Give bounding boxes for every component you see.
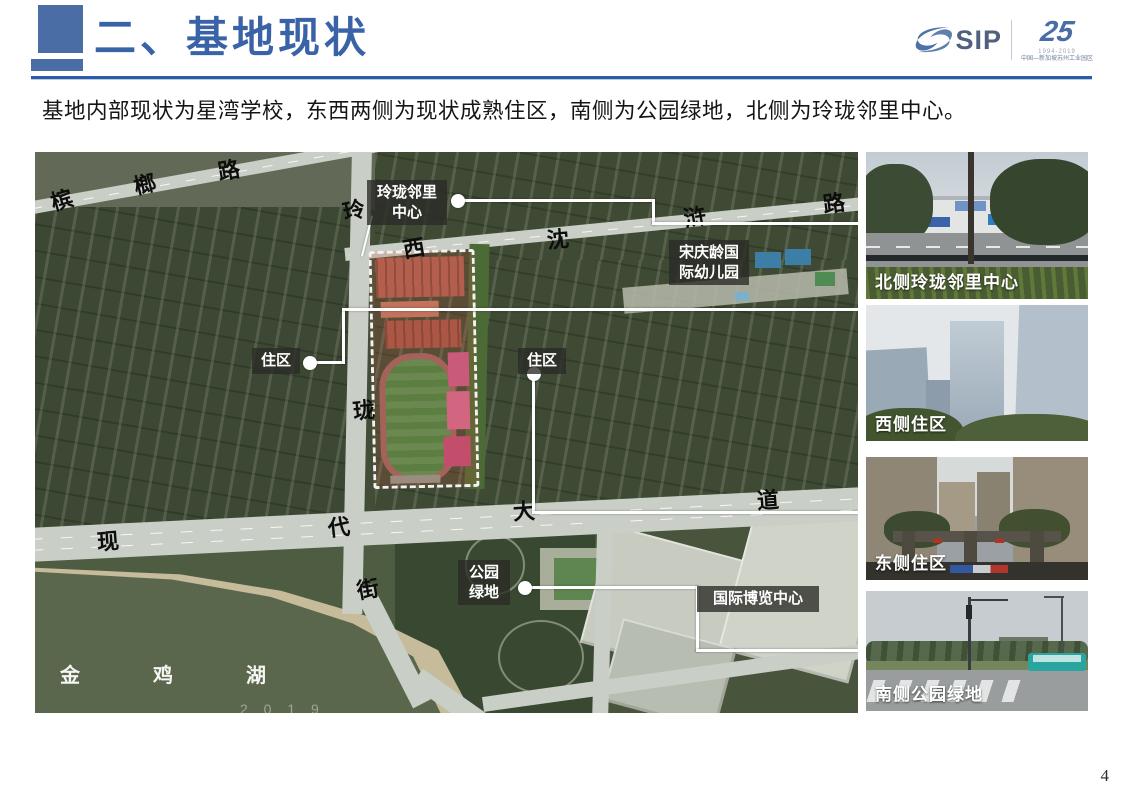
signal-arm: [968, 599, 1008, 601]
anniversary-years: 1994-2019: [1038, 49, 1076, 55]
fence: [866, 255, 1088, 261]
callout-line: [652, 222, 858, 225]
logo-divider: [1011, 20, 1012, 60]
photo-north-neighborhood-center: 北侧玲珑邻里中心: [866, 152, 1088, 299]
map-label-line: 住区: [257, 351, 295, 371]
map-label-res-east: 住区: [518, 348, 566, 374]
sip-logo-text: SIP: [955, 25, 1002, 56]
anniversary-number: 25: [1038, 18, 1075, 47]
gate-column: [964, 531, 977, 565]
road-name-char: 道: [756, 489, 779, 512]
map-watermark: 2 0 1 9: [240, 701, 325, 713]
tree: [990, 159, 1088, 244]
intro-text: 基地内部现状为星湾学校，东西两侧为现状成熟住区，南侧为公园绿地，北侧为玲珑邻里中…: [42, 94, 966, 125]
map-annotation-layer: 2 0 1 9 槟榔路玲西沈浒路珑现代大道街金鸡湖玲珑邻里中心宋庆龄国际幼儿园住…: [35, 152, 858, 713]
header-accent-square: [38, 5, 83, 53]
anniversary-org: 中国—新加坡苏州工业园区: [1021, 56, 1093, 62]
photo-south-park-green: 南侧公园绿地: [866, 591, 1088, 711]
callout-line: [696, 649, 858, 652]
anniversary-mark: 25 1994-2019 中国—新加坡苏州工业园区: [1021, 18, 1093, 62]
road-name-char: 西: [401, 236, 427, 261]
callout-line: [342, 308, 858, 311]
callout-line: [342, 309, 345, 364]
map-label-nlc: 玲珑邻里中心: [367, 180, 447, 225]
callout-line: [458, 199, 655, 202]
sip-swoosh-icon: [913, 23, 953, 57]
road-name-char: 现: [96, 530, 119, 553]
road-name-char: 珑: [352, 399, 376, 423]
road-name-char: 代: [327, 516, 351, 540]
header-accent-bar: [31, 59, 83, 71]
road-name-char: 路: [216, 158, 242, 183]
callout-dot: [303, 356, 317, 370]
lane-marking: [866, 246, 1088, 248]
callout-line: [532, 374, 535, 514]
lake-name-char: 金: [60, 666, 80, 686]
map-label-res-west: 住区: [252, 348, 300, 374]
map-label-line: 玲珑邻里: [372, 183, 442, 203]
map-label-line: 国际博览中心: [702, 589, 814, 609]
map-label-line: 中心: [372, 203, 442, 223]
header-divider: [31, 76, 1092, 80]
photo-caption: 西侧住区: [875, 410, 947, 435]
road-name-char: 榔: [132, 172, 159, 199]
page-number: 4: [1101, 766, 1110, 786]
photo-caption: 北侧玲珑邻里中心: [875, 268, 1019, 293]
traffic-light: [966, 605, 972, 619]
red-umbrella: [995, 538, 1004, 543]
photo-east-residences: 东侧住区: [866, 457, 1088, 580]
street-lamp: [1061, 596, 1063, 654]
slide: 二、基地现状 SIP 25 1994-2019 中国—新加坡苏州工业园区 基地内…: [0, 0, 1123, 794]
photo-caption: 南侧公园绿地: [875, 680, 983, 705]
page-title: 二、基地现状: [94, 4, 370, 65]
callout-dot: [451, 194, 465, 208]
callout-dot: [518, 581, 532, 595]
red-umbrella: [933, 538, 942, 543]
map-label-kindergarten: 宋庆龄国际幼儿园: [669, 240, 749, 285]
road-name-char: 路: [822, 192, 847, 217]
site-map: 2 0 1 9 槟榔路玲西沈浒路珑现代大道街金鸡湖玲珑邻里中心宋庆龄国际幼儿园住…: [35, 152, 858, 713]
road-name-char: 玲: [341, 198, 367, 224]
map-label-line: 宋庆龄国: [674, 243, 744, 263]
lake-name-char: 湖: [246, 666, 266, 686]
callout-line: [532, 511, 858, 514]
sip-logo: SIP 25 1994-2019 中国—新加坡苏州工业园区: [913, 16, 1093, 64]
photo-caption: 东侧住区: [875, 549, 947, 574]
road-name-char: 街: [355, 577, 381, 602]
map-label-line: 住区: [523, 351, 561, 371]
gate-column: [1030, 531, 1043, 565]
map-label-line: 绿地: [463, 583, 505, 603]
street-lamp-arm: [1044, 596, 1064, 598]
road-name-char: 槟: [48, 187, 75, 214]
tree-trunk: [968, 152, 974, 264]
map-label-line: 际幼儿园: [674, 263, 744, 283]
map-label-park: 公园绿地: [458, 560, 510, 605]
map-label-line: 公园: [463, 563, 505, 583]
callout-line: [525, 586, 699, 589]
road-name-char: 沈: [546, 228, 570, 252]
notice-board: [950, 565, 1008, 572]
road-name-char: 浒: [682, 205, 708, 230]
map-label-expo: 国际博览中心: [697, 586, 819, 612]
photo-west-residences: 西侧住区: [866, 305, 1088, 441]
bus-windows: [1033, 655, 1082, 662]
lake-name-char: 鸡: [153, 666, 173, 686]
